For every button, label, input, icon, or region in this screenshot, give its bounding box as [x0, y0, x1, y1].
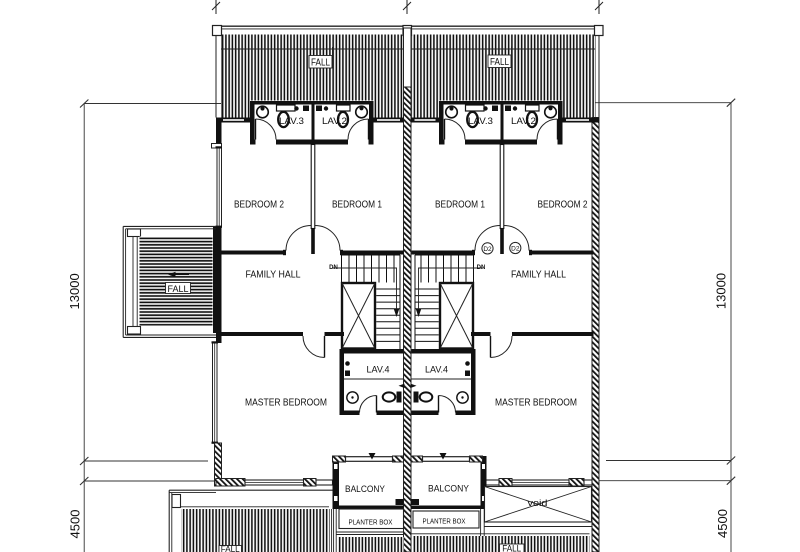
- svg-text:BALCONY: BALCONY: [345, 484, 386, 495]
- svg-text:DN: DN: [329, 265, 338, 271]
- svg-text:BEDROOM 1: BEDROOM 1: [332, 200, 382, 211]
- svg-text:LAV.4: LAV.4: [425, 365, 448, 375]
- svg-text:4500: 4500: [68, 510, 83, 539]
- svg-text:FALL: FALL: [221, 544, 240, 552]
- svg-text:LAV.4: LAV.4: [367, 365, 390, 375]
- svg-text:BALCONY: BALCONY: [428, 484, 470, 495]
- svg-text:13000: 13000: [67, 273, 82, 309]
- svg-text:4500: 4500: [715, 509, 730, 538]
- svg-text:PLANTER BOX: PLANTER BOX: [423, 517, 466, 526]
- svg-text:LAV.3: LAV.3: [279, 116, 304, 127]
- svg-text:FALL: FALL: [311, 58, 330, 69]
- svg-text:LAV.2: LAV.2: [322, 116, 347, 127]
- svg-text:D2: D2: [483, 246, 492, 253]
- svg-text:D2: D2: [511, 246, 520, 253]
- svg-text:FALL: FALL: [168, 284, 189, 295]
- svg-text:PLANTER BOX: PLANTER BOX: [349, 518, 393, 527]
- svg-text:MASTER BEDROOM: MASTER BEDROOM: [245, 398, 327, 409]
- svg-text:FAMILY HALL: FAMILY HALL: [511, 270, 566, 281]
- svg-text:DN: DN: [477, 265, 486, 271]
- svg-text:BEDROOM 1: BEDROOM 1: [435, 200, 485, 211]
- svg-text:FALL: FALL: [502, 544, 521, 552]
- svg-text:MASTER BEDROOM: MASTER BEDROOM: [495, 398, 577, 409]
- svg-text:FAMILY HALL: FAMILY HALL: [246, 270, 301, 281]
- svg-text:BEDROOM 2: BEDROOM 2: [538, 200, 588, 211]
- svg-text:void: void: [528, 498, 548, 508]
- svg-text:FALL: FALL: [490, 57, 509, 68]
- svg-text:BEDROOM 2: BEDROOM 2: [234, 200, 284, 211]
- svg-text:13000: 13000: [714, 273, 729, 309]
